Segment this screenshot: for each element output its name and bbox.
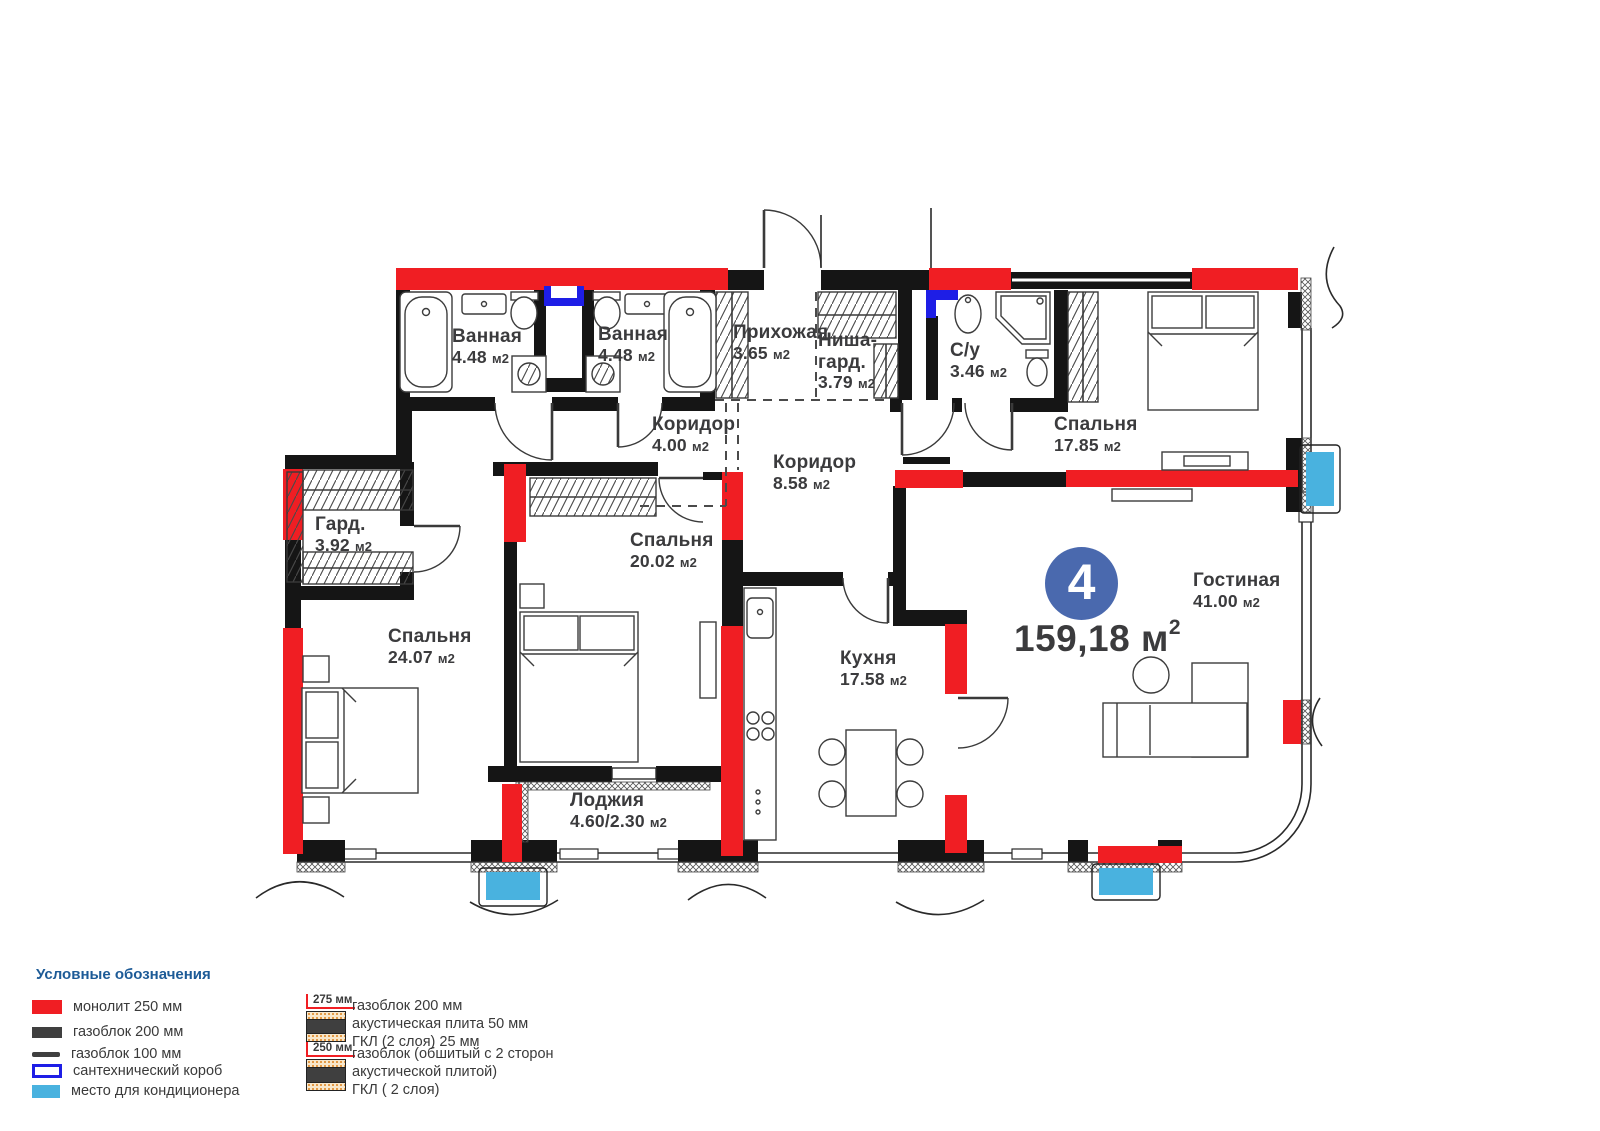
- kitchen-counter: [744, 588, 776, 840]
- room-label-niche-wardrobe: Ниша-гард. 3.79 м2: [818, 330, 894, 393]
- room-label-corridor-4: Коридор 4.00 м2: [652, 414, 735, 456]
- plumbing-box-swatch: [32, 1064, 62, 1078]
- apartment-number-badge: 4: [1045, 547, 1118, 620]
- room-label-loggia: Лоджия 4.60/2.30 м2: [570, 790, 667, 832]
- room-name: С/у: [950, 340, 1007, 362]
- bed-double: [520, 612, 638, 762]
- room-name: Кухня: [840, 648, 907, 670]
- tv-console: [1162, 452, 1248, 470]
- assembly-description: газоблок (обшитый с 2 сторон акустическо…: [352, 1046, 554, 1100]
- shelf: [1112, 489, 1192, 501]
- desk: [700, 622, 716, 698]
- monolith-swatch: [32, 1000, 62, 1014]
- sink-icon: [955, 295, 981, 333]
- room-label-bathroom-1: Ванная 4.48 м2: [452, 326, 522, 368]
- gasblock-100-swatch: [32, 1052, 60, 1057]
- room-name: Спальня: [1054, 414, 1137, 436]
- legend-assembly-250: 250 мм газоблок (обшитый с 2 сторон акус…: [306, 1038, 606, 1091]
- room-label-bathroom-2: Ванная 4.48 м2: [598, 324, 668, 366]
- floorplan-page: Ванная 4.48 м2 Ванная 4.48 м2 Прихожая 3…: [0, 0, 1600, 1131]
- sink-icon: [462, 294, 506, 314]
- room-label-wardrobe: Гард. 3.92 м2: [315, 514, 372, 556]
- legend-item-ac-spot: место для кондиционера: [32, 1083, 239, 1099]
- room-name: Прихожая: [733, 322, 828, 344]
- room-name: Коридор: [652, 414, 735, 436]
- wall-assembly-swatch: [306, 1059, 346, 1091]
- total-area: 159,18 м2: [1014, 618, 1181, 660]
- side-table-round: [1133, 657, 1169, 693]
- gasblock-200-swatch: [32, 1027, 62, 1038]
- room-label-su: С/у 3.46 м2: [950, 340, 1007, 382]
- sink-icon: [625, 294, 669, 314]
- dimension-label: 275 мм: [306, 994, 355, 1009]
- room-label-entry-hall: Прихожая 3.65 м2: [733, 322, 828, 364]
- nightstand: [303, 656, 329, 682]
- room-name: Ниша-гард.: [818, 330, 894, 373]
- room-label-bedroom-20: Спальня 20.02 м2: [630, 530, 713, 572]
- legend-item-gasblock-100: газоблок 100 мм: [32, 1046, 181, 1062]
- legend-assembly-275: 275 мм газоблок 200 мм акустическая плит…: [306, 990, 606, 1042]
- floor-plan-drawing: [0, 0, 1600, 1131]
- loggia-window: [612, 768, 656, 779]
- dining-table: [819, 730, 923, 816]
- bathtub-icon: [664, 292, 716, 392]
- legend-item-gasblock-200: газоблок 200 мм: [32, 1024, 183, 1040]
- sofa-corner: [1103, 663, 1248, 757]
- room-label-kitchen: Кухня 17.58 м2: [840, 648, 907, 690]
- room-name: Лоджия: [570, 790, 667, 812]
- dimension-label: 250 мм: [306, 1042, 355, 1057]
- room-name: Ванная: [598, 324, 668, 346]
- room-name: Гостиная: [1193, 570, 1280, 592]
- nightstand: [520, 584, 544, 608]
- bed-double: [302, 688, 418, 793]
- legend-item-plumbing-box: сантехнический короб: [32, 1063, 222, 1079]
- bathtub-icon: [400, 292, 452, 392]
- room-label-living-room: Гостиная 41.00 м2: [1193, 570, 1280, 612]
- shower-icon: [996, 292, 1050, 344]
- legend-item-monolith: монолит 250 мм: [32, 999, 182, 1015]
- legend-title: Условные обозначения: [36, 966, 211, 983]
- room-label-bedroom-17: Спальня 17.85 м2: [1054, 414, 1137, 456]
- plumbing-box-notch: [551, 286, 577, 298]
- bed-double: [1148, 292, 1258, 410]
- toilet-icon: [511, 292, 538, 329]
- toilet-icon: [1026, 350, 1048, 386]
- room-name: Спальня: [630, 530, 713, 552]
- room-name: Ванная: [452, 326, 522, 348]
- room-label-bedroom-24: Спальня 24.07 м2: [388, 626, 471, 668]
- nightstand: [303, 797, 329, 823]
- room-name: Коридор: [773, 452, 856, 474]
- room-name: Гард.: [315, 514, 372, 536]
- ac-spot-swatch: [32, 1085, 60, 1098]
- room-label-corridor-8: Коридор 8.58 м2: [773, 452, 856, 494]
- room-name: Спальня: [388, 626, 471, 648]
